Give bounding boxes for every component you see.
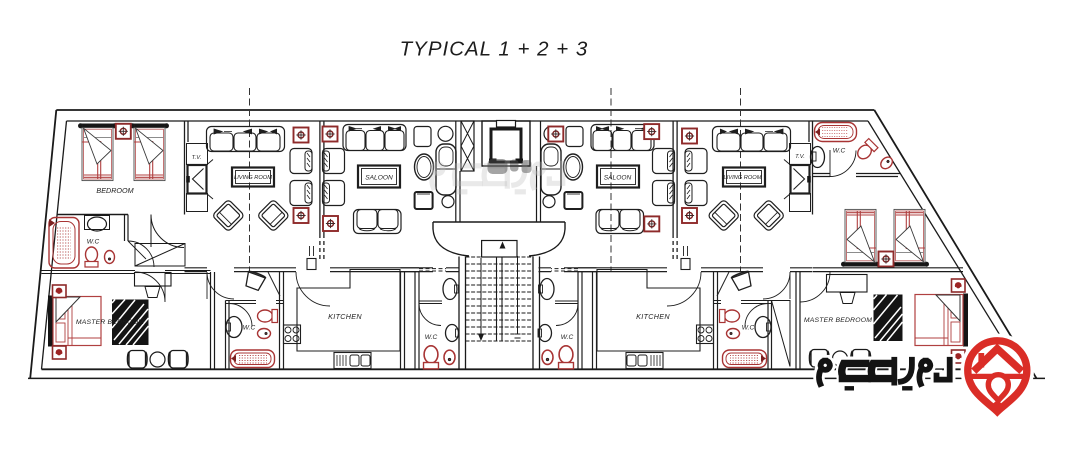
svg-text:SALOON: SALOON xyxy=(365,175,393,182)
svg-text:W.C: W.C xyxy=(833,148,846,155)
svg-text:T.V.: T.V. xyxy=(192,155,202,161)
svg-text:BEDROOM: BEDROOM xyxy=(96,186,133,195)
svg-text:LIVING ROOM: LIVING ROOM xyxy=(724,175,762,181)
svg-text:T.V.: T.V. xyxy=(795,154,805,160)
svg-text:W.C: W.C xyxy=(561,334,574,341)
svg-text:W.C: W.C xyxy=(742,325,755,332)
svg-text:TYPICAL 1 + 2 + 3: TYPICAL 1 + 2 + 3 xyxy=(400,38,589,61)
svg-text:W.C: W.C xyxy=(87,239,100,246)
svg-text:KITCHEN: KITCHEN xyxy=(328,312,362,321)
svg-text:SALOON: SALOON xyxy=(604,175,632,182)
svg-text:KITCHEN: KITCHEN xyxy=(636,312,670,321)
svg-text:MASTER BEDROOM: MASTER BEDROOM xyxy=(804,317,872,324)
svg-text:W.C: W.C xyxy=(425,334,438,341)
svg-text:LIVING ROOM: LIVING ROOM xyxy=(234,175,272,181)
svg-text:MASTER BEDROOM: MASTER BEDROOM xyxy=(76,319,144,326)
svg-text:W.C: W.C xyxy=(243,325,256,332)
